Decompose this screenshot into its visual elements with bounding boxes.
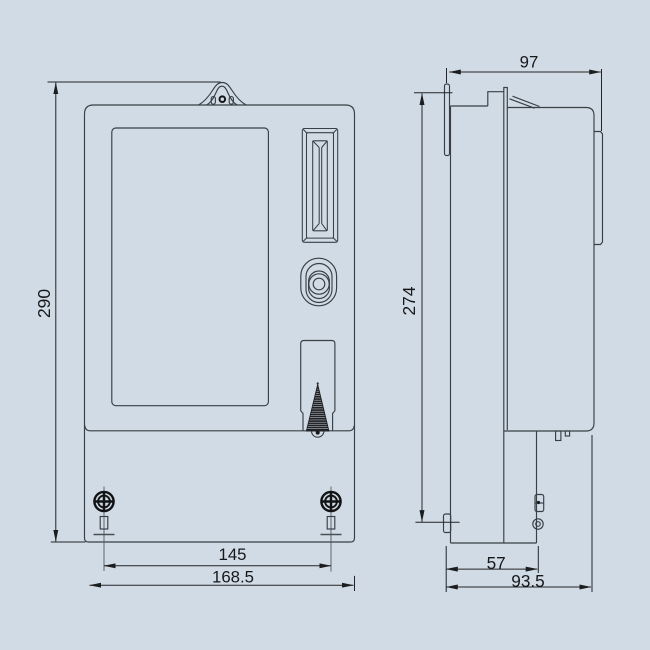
svg-text:97: 97 xyxy=(520,53,539,72)
svg-text:93.5: 93.5 xyxy=(511,571,544,591)
svg-text:145: 145 xyxy=(219,545,247,564)
svg-text:274: 274 xyxy=(399,286,419,315)
svg-text:57: 57 xyxy=(487,553,506,573)
svg-text:168.5: 168.5 xyxy=(212,568,254,587)
svg-text:290: 290 xyxy=(34,289,54,318)
